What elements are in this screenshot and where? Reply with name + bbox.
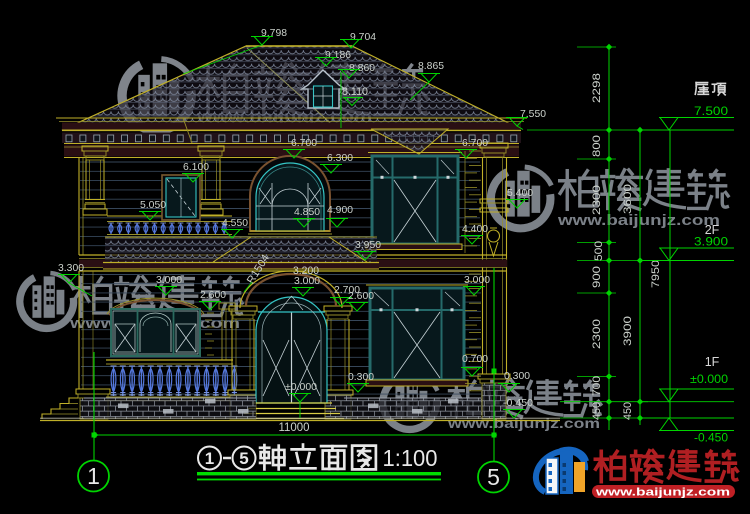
svg-text:2F: 2F [705,223,720,237]
svg-text:1:100: 1:100 [383,445,438,471]
svg-text:2300: 2300 [591,319,603,349]
svg-text:9.798: 9.798 [261,27,287,39]
svg-text:700: 700 [591,376,603,396]
svg-text:11000: 11000 [279,422,310,434]
svg-text:450: 450 [591,402,603,420]
svg-text:5.400: 5.400 [507,187,533,199]
svg-text:-0.450: -0.450 [694,433,728,445]
svg-text:500: 500 [593,241,605,261]
svg-text:6.100: 6.100 [183,161,209,173]
svg-text:8.110: 8.110 [342,86,368,98]
svg-text:±0.000: ±0.000 [690,374,728,386]
svg-text:www.baijunjz.com: www.baijunjz.com [557,212,720,229]
svg-text:8.865: 8.865 [418,60,444,72]
svg-text:1: 1 [87,463,100,489]
svg-text:7.500: 7.500 [694,106,728,118]
svg-text:2298: 2298 [591,73,603,103]
svg-text:-0.450: -0.450 [503,397,533,409]
svg-text:5: 5 [239,449,248,468]
svg-text:www.baijunjz.com: www.baijunjz.com [595,487,731,499]
svg-text:0.700: 0.700 [462,353,488,365]
svg-text:3.950: 3.950 [355,239,381,251]
svg-text:9.186: 9.186 [325,49,351,61]
svg-text:4.550: 4.550 [222,217,248,229]
svg-text:2.600: 2.600 [348,290,374,302]
svg-text:3.000: 3.000 [294,275,320,287]
svg-text:8.860: 8.860 [349,62,375,74]
svg-text:6.700: 6.700 [462,137,488,149]
svg-text:5: 5 [487,464,500,490]
svg-text:4.850: 4.850 [294,206,320,218]
svg-text:±0.000: ±0.000 [285,381,317,393]
svg-text:6.700: 6.700 [291,137,317,149]
svg-text:3900: 3900 [622,316,634,346]
svg-text:3.300: 3.300 [58,262,84,274]
svg-text:900: 900 [591,266,603,288]
svg-text:4.900: 4.900 [327,204,353,216]
svg-text:9.704: 9.704 [350,31,376,43]
svg-text:3.000: 3.000 [464,274,490,286]
svg-text:4.400: 4.400 [462,223,488,235]
svg-text:0.300: 0.300 [504,370,530,382]
svg-text:0.300: 0.300 [348,371,374,383]
svg-text:6.300: 6.300 [327,152,353,164]
svg-text:1: 1 [205,449,214,468]
svg-text:3.900: 3.900 [694,237,728,249]
svg-text:800: 800 [591,135,603,157]
svg-text:5.050: 5.050 [140,199,166,211]
svg-text:2.600: 2.600 [200,289,226,301]
svg-text:3600: 3600 [622,184,634,214]
svg-text:2300: 2300 [591,185,603,215]
svg-text:450: 450 [622,402,634,420]
svg-text:7950: 7950 [650,260,662,288]
svg-text:1F: 1F [705,355,720,369]
svg-text:3.000: 3.000 [156,274,182,286]
